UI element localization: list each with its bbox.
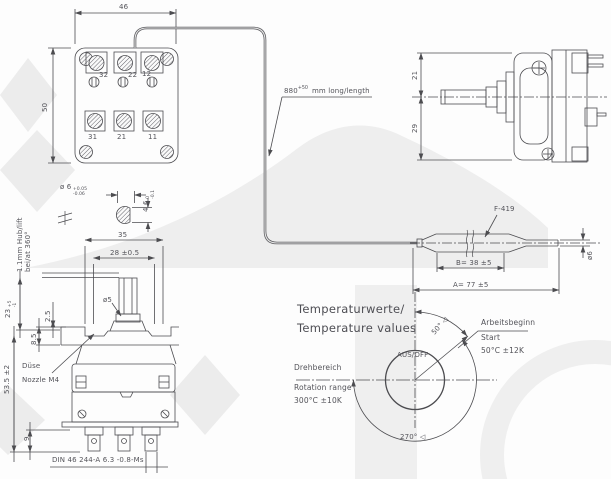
contact-11-label: 11	[148, 133, 157, 141]
dial-start-value: 50°C ±12K	[481, 347, 524, 355]
dial-title-de: Temperaturwerte/	[297, 303, 405, 316]
dim-53-label: 53.5 ±2	[3, 365, 11, 394]
sensor-dia-label: ø6	[586, 251, 594, 260]
capillary-length-label: 880+50mm long/length	[284, 85, 370, 95]
dial-range-en: Rotation range	[294, 384, 352, 392]
contact-12-label: 12	[142, 70, 151, 78]
front-view	[48, 9, 178, 163]
dim-35-label: 35	[118, 231, 127, 239]
lift-label: 1.1mm Hub/lift bei/at 360°	[16, 217, 32, 272]
contact-21-label: 21	[117, 133, 126, 141]
din-label: DIN 46 244-A 6.3 -0.8-Ms	[52, 456, 144, 464]
dim-height-label: 50	[41, 103, 49, 112]
dim-9-label: 9	[23, 436, 31, 441]
section-dia-label: ø 6+0.05-0.06	[60, 183, 87, 198]
contact-22-label: 22	[128, 71, 137, 79]
side-view	[412, 50, 607, 162]
sensor-part-label: F-419	[494, 205, 515, 213]
technical-drawing-thermostat: 46 50 32 22 12 31 21 11 880+50mm long/le…	[0, 0, 611, 479]
nozzle-label-en: Nozzle M4	[22, 376, 59, 384]
drawing-linework	[0, 0, 611, 479]
contact-31-label: 31	[88, 133, 97, 141]
dim-shaft-label: ø5	[103, 296, 112, 304]
dim-b-label: B= 38 ±5	[456, 259, 492, 267]
section-flat-label: 4.60-0.1	[142, 190, 157, 212]
dial-angle-range-label: 270° ◁	[400, 433, 425, 441]
dim-21-label: 21	[411, 71, 419, 80]
dial-start-de: Arbeitsbeginn	[481, 319, 535, 327]
dial-range-de: Drehbereich	[294, 364, 342, 372]
dial-start-en: Start	[481, 334, 500, 342]
dial-off-label: AUS/OFF	[397, 351, 428, 359]
contact-32-label: 32	[99, 71, 108, 79]
dim-width-label: 46	[119, 3, 128, 11]
dim-23-label: 23+5-1	[4, 301, 19, 319]
dim-a-label: A= 77 ±5	[453, 281, 489, 289]
dim-28-label: 28 ±0.5	[110, 249, 139, 257]
dim-29-label: 29	[411, 124, 419, 133]
dial-range-value: 300°C ±10K	[294, 397, 342, 405]
dial-title-en: Temperature values	[297, 322, 416, 335]
nozzle-label-de: Düse	[22, 362, 40, 370]
dim-8-5-label: 8.5	[30, 333, 38, 345]
dim-2-5-label: 2.5	[44, 310, 52, 322]
